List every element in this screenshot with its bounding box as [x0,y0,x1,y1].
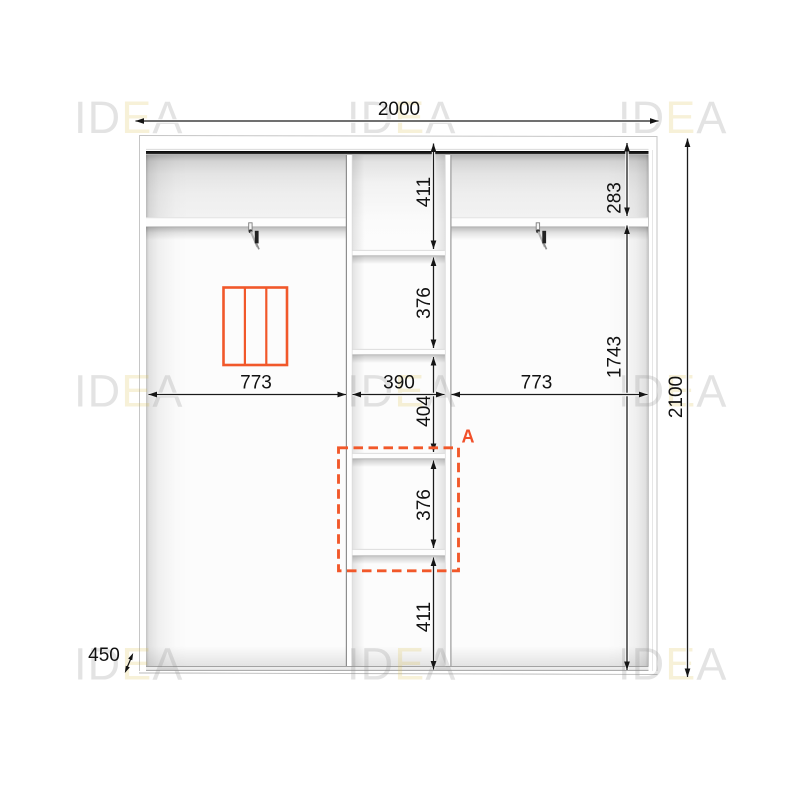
svg-text:411: 411 [414,602,435,632]
svg-text:IDEA: IDEA [74,92,183,143]
svg-text:390: 390 [383,373,415,394]
svg-text:376: 376 [414,489,435,521]
svg-text:773: 773 [521,373,553,394]
svg-text:376: 376 [414,287,435,319]
svg-text:2000: 2000 [378,99,420,120]
svg-text:2100: 2100 [666,376,687,418]
svg-text:IDEA: IDEA [618,639,727,690]
svg-text:411: 411 [414,177,435,207]
svg-text:1743: 1743 [605,336,626,378]
svg-text:IDEA: IDEA [618,92,727,143]
svg-text:450: 450 [88,645,120,666]
svg-text:283: 283 [605,182,626,214]
svg-text:773: 773 [240,373,272,394]
svg-text:IDEA: IDEA [347,639,456,690]
svg-text:IDEA: IDEA [74,366,183,417]
svg-text:404: 404 [414,395,435,427]
svg-text:A: A [462,427,475,447]
